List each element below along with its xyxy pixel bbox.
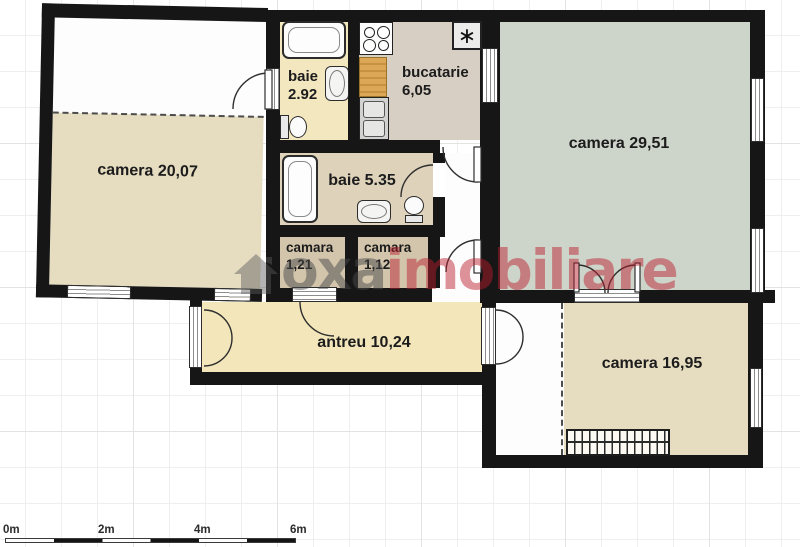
scale-label-6m: 6m [290, 524, 307, 536]
camara-112-area: 1,12 [364, 257, 411, 272]
room-label-bucatarie: bucatarie 6,05 [402, 64, 469, 100]
scale-label-4m: 4m [194, 524, 211, 536]
baie-292-area: 2.92 [288, 86, 318, 104]
door-arcs [0, 0, 800, 547]
room-label-camara-121: camara 1,21 [286, 239, 333, 272]
camara-121-area: 1,21 [286, 257, 333, 272]
scale-label-2m: 2m [98, 524, 115, 536]
bucatarie-area: 6,05 [402, 82, 469, 100]
baie-292-name: baie [288, 68, 318, 85]
room-label-baie-535: baie 5.35 [328, 172, 396, 190]
room-label-camera-1695: camera 16,95 [602, 355, 703, 373]
room-label-camara-112: camara 1,12 [364, 239, 411, 272]
scale-label-0m: 0m [3, 524, 20, 536]
scale-bar: 0m 2m 4m 6m [0, 524, 320, 546]
camara-121-name: camara [286, 240, 333, 255]
floorplan-canvas: camera 20,07 [0, 0, 800, 547]
bucatarie-name: bucatarie [402, 64, 469, 81]
camara-112-name: camara [364, 240, 411, 255]
scale-bar-segments [5, 538, 296, 543]
room-label-camera-2951: camera 29,51 [569, 135, 670, 153]
room-label-baie-292: baie 2.92 [288, 68, 318, 104]
room-label-antreu: antreu 10,24 [317, 334, 410, 352]
